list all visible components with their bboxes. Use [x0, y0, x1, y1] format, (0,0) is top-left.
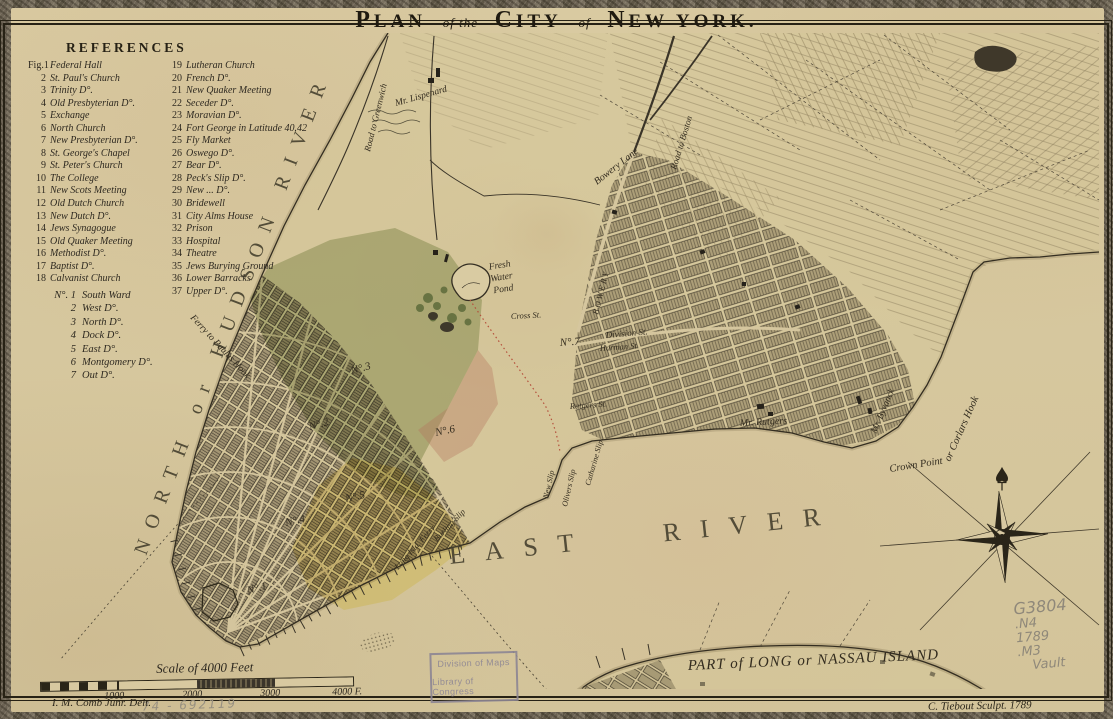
- ward-item: 7Out D°.: [42, 369, 153, 382]
- reference-item: 35Jews Burying Ground: [164, 261, 307, 274]
- ward-item: N°. 1South Ward: [42, 289, 153, 302]
- ward-item: 3North D°.: [42, 316, 153, 329]
- reference-item: 16Methodist D°.: [28, 248, 164, 261]
- reference-item: 17Baptist D°.: [28, 261, 164, 274]
- reference-item: 20French D°.: [164, 73, 307, 86]
- stamp-line-2: Library of Congress: [432, 675, 516, 697]
- delineator-credit: I. M. Comb Junr. Delt.: [52, 697, 151, 709]
- reference-item: 33Hospital: [164, 236, 307, 249]
- engraver-credit: C. Tiebout Sculpt. 1789: [928, 699, 1032, 713]
- reference-item: 5Exchange: [28, 110, 164, 123]
- cross-st-label: Cross St.: [511, 309, 542, 321]
- reference-item: 24Fort George in Latitude 40.42: [164, 123, 307, 136]
- reference-item: 25Fly Market: [164, 135, 307, 148]
- reference-item: 14Jews Synagogue: [28, 223, 164, 236]
- reference-item: 19Lutheran Church: [164, 60, 307, 73]
- title-connector-1: of the: [443, 15, 478, 31]
- reference-item: 37Upper D°.: [164, 286, 307, 299]
- reference-item: 34Theatre: [164, 248, 307, 261]
- olivers-slip-label: Olivers Slip: [560, 468, 577, 507]
- reference-item: 28Peck's Slip D°.: [164, 173, 307, 186]
- title-word-newyork: NEW YORK.: [607, 7, 757, 34]
- references-column-2: 19Lutheran Church20French D°.21New Quake…: [164, 60, 307, 298]
- reference-item: Fig.1Federal Hall: [28, 60, 164, 73]
- reference-item: 4Old Presbyterian D°.: [28, 98, 164, 111]
- corlars-hook-label: or Corlars Hook: [943, 394, 982, 463]
- ward-item: 2West D°.: [42, 302, 153, 315]
- reference-item: 21New Quaker Meeting: [164, 85, 307, 98]
- map-title: PLAN of the CITY of NEW YORK.: [0, 7, 1113, 34]
- ward-item: 6Montgomery D°.: [42, 356, 153, 369]
- ward-item: 4Dock D°.: [42, 329, 153, 342]
- fleur-de-lis-icon: [997, 468, 1008, 491]
- reference-item: 13New Dutch D°.: [28, 211, 164, 224]
- title-word-plan: PLAN: [355, 7, 426, 34]
- title-connector-2: of: [578, 15, 590, 31]
- reference-item: 10The College: [28, 173, 164, 186]
- reference-item: 27Bear D°.: [164, 160, 307, 173]
- map-sheet-scan: NORTH or HUDSON RIVER EAST RIVER PART of…: [0, 0, 1113, 719]
- reference-item: 7New Presbyterian D°.: [28, 135, 164, 148]
- scale-segment: [275, 677, 353, 686]
- references-heading: REFERENCES: [66, 40, 328, 56]
- crown-point-label: Crown Point: [889, 456, 945, 475]
- reference-item: 6North Church: [28, 123, 164, 136]
- scale-tick-4000: 4000 F.: [332, 686, 362, 698]
- scale-tick-3000: 3000: [260, 688, 280, 699]
- reference-item: 32Prison: [164, 223, 307, 236]
- reference-item: 12Old Dutch Church: [28, 198, 164, 211]
- shoal-stipple: [358, 629, 397, 656]
- reference-item: 30Bridewell: [164, 198, 307, 211]
- references-panel: REFERENCES Fig.1Federal Hall2St. Paul's …: [28, 40, 328, 298]
- stamp-line-1: Division of Maps: [437, 657, 510, 669]
- call-number-note: G3804 .N4 1789 .M3 Vault: [1013, 596, 1072, 675]
- scale-segment: [197, 679, 275, 688]
- reference-item: 11New Scots Meeting: [28, 185, 164, 198]
- catharine-slip-label: Catharine Slip: [583, 439, 605, 487]
- reference-item: 3Trinity D°.: [28, 85, 164, 98]
- reference-item: 23Moravian D°.: [164, 110, 307, 123]
- scale-segment: [41, 682, 119, 691]
- references-column-1: Fig.1Federal Hall2St. Paul's Church3Trin…: [28, 60, 164, 298]
- reference-item: 26Oswego D°.: [164, 148, 307, 161]
- reference-item: 31City Alms House: [164, 211, 307, 224]
- reference-item: 2St. Paul's Church: [28, 73, 164, 86]
- reference-item: 8St. George's Chapel: [28, 148, 164, 161]
- scale-segment: [119, 680, 197, 689]
- ward-list-panel: N°. 1South Ward2West D°.3North D°.4Dock …: [42, 289, 153, 383]
- reference-item: 29New ... D°.: [164, 185, 307, 198]
- ward-7-label: N°.7: [558, 336, 580, 349]
- scale-caption: Scale of 4000 Feet: [90, 658, 320, 678]
- reference-item: 15Old Quaker Meeting: [28, 236, 164, 249]
- title-word-city: CITY: [495, 7, 562, 34]
- reference-item: 18Calvanist Church: [28, 273, 164, 286]
- loc-stamp: Division of Maps Library of Congress: [429, 651, 518, 703]
- reference-item: 36Lower Barracks: [164, 273, 307, 286]
- reference-item: 22Seceder D°.: [164, 98, 307, 111]
- reference-item: 9St. Peter's Church: [28, 160, 164, 173]
- ward-item: 5East D°.: [42, 343, 153, 356]
